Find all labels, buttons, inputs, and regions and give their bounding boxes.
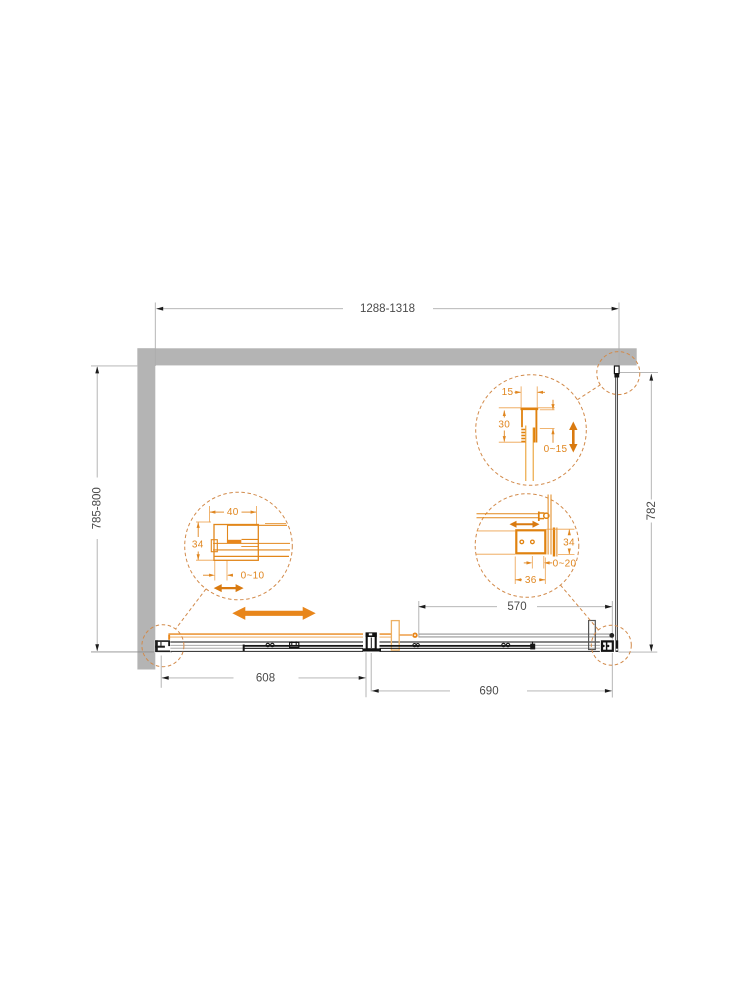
- svg-text:15: 15: [502, 387, 514, 398]
- svg-text:782: 782: [646, 501, 658, 520]
- svg-text:34: 34: [192, 540, 204, 551]
- svg-text:608: 608: [256, 672, 275, 684]
- svg-text:0~20: 0~20: [553, 558, 577, 569]
- svg-text:0~10: 0~10: [241, 571, 265, 582]
- svg-text:570: 570: [507, 601, 526, 613]
- svg-text:30: 30: [498, 419, 510, 430]
- svg-text:40: 40: [227, 507, 239, 518]
- svg-text:785-800: 785-800: [92, 487, 104, 529]
- svg-text:36: 36: [525, 575, 537, 586]
- svg-text:690: 690: [479, 685, 498, 697]
- svg-text:0~15: 0~15: [544, 444, 568, 455]
- svg-text:34: 34: [563, 537, 575, 548]
- svg-text:1288-1318: 1288-1318: [360, 303, 415, 315]
